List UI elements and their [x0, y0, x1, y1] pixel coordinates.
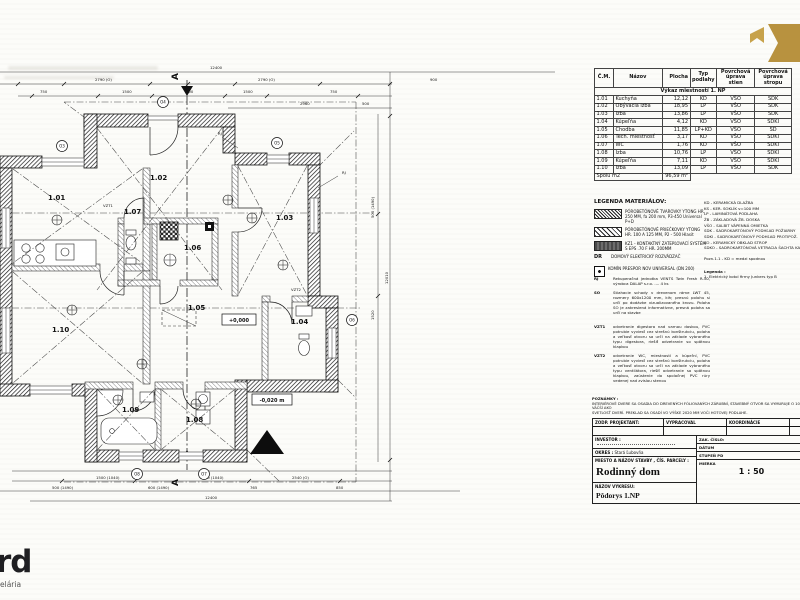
- dimension-label: 1500: [122, 89, 132, 94]
- site-label: MIESTO A NÁZOV STAVBY , ČÍS. PARCELY :: [593, 457, 696, 464]
- dimension-label: 600 (1490): [148, 485, 170, 490]
- opening-marker-label: O5: [274, 141, 280, 146]
- date-label: DÁTUM: [697, 444, 800, 452]
- cell: LP: [690, 165, 717, 173]
- cell: 13,86: [662, 111, 690, 119]
- north-triangle-marker: [250, 430, 284, 454]
- cell: LP+KD: [690, 127, 717, 135]
- investor-value-redacted: [597, 444, 675, 445]
- project-name: Rodinný dom: [593, 464, 696, 482]
- section-title: Výkaz miestností 1. NP: [595, 88, 792, 96]
- interior-walls: [12, 165, 308, 450]
- hatch-swatch: [594, 227, 622, 237]
- cell: VŠO: [717, 165, 755, 173]
- dimension-chains: [0, 72, 555, 501]
- room-label-1-09: 1.09: [122, 406, 139, 414]
- legend-item: PÓROBETÓNOVÉ TVAROVKY YTONG HR. 250 MM, …: [594, 209, 706, 224]
- cell: Izba: [614, 165, 663, 173]
- investor-label: INVESTOR :: [595, 437, 621, 442]
- col-header: Typ podlahy: [690, 69, 717, 88]
- cell: SDK: [755, 111, 792, 119]
- note-row: VZT1 odvetranie digestora nad varnou dos…: [594, 324, 710, 349]
- pozn-note: Pozn.1.1 - KD = medzi spodnou: [704, 256, 800, 262]
- opening-marker-label: O8: [134, 472, 140, 477]
- material-legend: LEGENDA MATERIÁLOV: PÓROBETÓNOVÉ TVAROVK…: [594, 199, 706, 280]
- table-row: 1.07WC1,76KDVŠOSDKI: [595, 142, 792, 150]
- cell: 1.06: [595, 134, 614, 142]
- toilet: [126, 236, 136, 250]
- cell: 1.01: [595, 96, 614, 104]
- room-label-1-07: 1.07: [124, 208, 141, 216]
- legend-item-text: KZ1 - KONTAKTNÝ ZATEPĽOVACÍ SYSTÉM S EPS…: [625, 241, 706, 251]
- cell: 12,12: [662, 96, 690, 104]
- cell: 11,85: [662, 127, 690, 135]
- table-row: 1.03Izba13,86LPVŠOSDK: [595, 111, 792, 119]
- cell: Kúpeľňa: [614, 158, 663, 166]
- table-row: 1.05Chodba11,85LP+KDVŠOSD: [595, 127, 792, 135]
- dimension-label: 500 (1490): [370, 196, 375, 218]
- district-value: Stará Ľubovňa: [614, 450, 643, 455]
- remarks-line2: SVETLOSŤ DVERÍ. PREKLAD SA OSADÍ VO VÝŠK…: [592, 411, 748, 415]
- cell: VŠO: [717, 111, 755, 119]
- cell: KD: [690, 119, 717, 127]
- cell: 18,95: [662, 103, 690, 111]
- order-number-label: ZAK. ČÍSLO:: [697, 436, 800, 444]
- abbrev-line: SDKI - SADROKARTÓNOVÝ PODHĽAD PROTIPOŽ.: [704, 234, 800, 240]
- cell: SDK: [755, 96, 792, 104]
- cell: VŠO: [717, 103, 755, 111]
- dimension-label: 12010: [384, 271, 389, 284]
- note-text: odvetranie digestora nad varnou doskou, …: [613, 324, 710, 349]
- cell: SDKI: [755, 119, 792, 127]
- washbasin: [126, 258, 136, 264]
- note-key: SO: [594, 290, 610, 315]
- drawn-by-label: VYPRACOVAL: [664, 419, 727, 426]
- room-label-1-02: 1.02: [150, 174, 167, 182]
- cell: SDKI: [755, 158, 792, 166]
- windows: [2, 116, 336, 460]
- section-letter-bottom: A: [171, 479, 181, 486]
- dimension-label: 12400: [210, 65, 223, 70]
- table-row: 1.09Kúpeľňa7,11KDVŠOSDKI: [595, 158, 792, 166]
- elevation-outdoor: -0,020 m: [260, 398, 285, 404]
- room-label-1-03: 1.03: [276, 214, 293, 222]
- legend-item-text: PÓROBETÓNOVÉ TVAROVKY YTONG HR. 250 MM, …: [625, 209, 706, 224]
- company-logo-fragment: rd: [0, 544, 31, 580]
- room-label-1-04: 1.04: [291, 318, 308, 326]
- legend-item: PÓROBETÓNOVÉ PRIEČKOVKY YTONG HR. 100 A …: [594, 227, 706, 237]
- cell: 1.07: [595, 142, 614, 150]
- gold-brand-icon: [748, 24, 800, 62]
- title-block: POZNÁMKY : INTERIÉROVÉ DVERE SA OSADIA D…: [592, 397, 800, 504]
- dimension-label: 2790 (O): [258, 77, 275, 82]
- note-text: odvetranie WC, miestností a kúpeľní, PVC…: [613, 353, 710, 383]
- cell: 1.09: [595, 158, 614, 166]
- cell: SDKI: [755, 150, 792, 158]
- cell: VŠO: [717, 119, 755, 127]
- company-logo-subtext: elária: [0, 580, 21, 589]
- dimension-label: 2790 (O): [95, 77, 112, 82]
- cell: Chodba: [614, 127, 663, 135]
- floor-plan: A A: [0, 58, 592, 506]
- cell: WC: [614, 142, 663, 150]
- room-label-1-06: 1.06: [184, 244, 201, 252]
- note-row: SO Stiahacie schody v drevenom ráme LWT …: [594, 290, 710, 315]
- table-row: 1.06Tech. miestnosť3,17KDVŠOSDKI: [595, 134, 792, 142]
- total-area: 96,59 m²: [662, 173, 690, 181]
- dimension-label: 1500: [243, 89, 253, 94]
- cell: SDKI: [755, 142, 792, 150]
- note-key: VZT2: [594, 353, 610, 383]
- cell: LP: [690, 103, 717, 111]
- note-row: RJ Rekuperačná jednotka VENTS Twin Fresh…: [594, 276, 710, 286]
- col-header: Č.M.: [595, 69, 614, 88]
- district-label: OKRES :: [595, 450, 613, 455]
- cell: SDK: [755, 165, 792, 173]
- scale-value: 1 : 50: [697, 467, 800, 476]
- dimension-label: VZT2: [291, 287, 302, 292]
- cell: Kúpeľňa: [614, 119, 663, 127]
- opening-marker-label: O3: [59, 144, 65, 149]
- floor-plan-drawing: A A: [0, 58, 592, 506]
- coordination-label: KOORDINÁCIE: [727, 419, 790, 426]
- dimension-label: 1500 (1040): [96, 475, 120, 480]
- dimension-label: 750: [330, 89, 338, 94]
- scale-label: MIERKA: [697, 460, 800, 467]
- washbasin: [296, 306, 312, 316]
- legend-item-text: KOMÍN PRESPOR NOV UNIVERSAL (DN 200): [608, 266, 695, 271]
- cell: KD: [690, 134, 717, 142]
- remarks: POZNÁMKY : INTERIÉROVÉ DVERE SA OSADIA D…: [592, 397, 800, 416]
- cell: Izba: [614, 111, 663, 119]
- table-row: 1.02Obývacia izba18,95LPVŠOSDK: [595, 103, 792, 111]
- cell: LP: [690, 150, 717, 158]
- cell: 1.05: [595, 127, 614, 135]
- cell: VŠO: [717, 134, 755, 142]
- room-label-1-01: 1.01: [48, 194, 65, 202]
- table-row: 1.04Kúpeľňa4,12KDVŠOSDKI: [595, 119, 792, 127]
- dimension-label: 900: [430, 77, 438, 82]
- room-label-1-10: 1.10: [52, 326, 69, 334]
- cell: SDK: [755, 103, 792, 111]
- note-key: RJ: [594, 276, 610, 286]
- remarks-label: POZNÁMKY :: [592, 397, 618, 401]
- section-line-A: A A: [171, 73, 193, 486]
- cell: Obývacia izba: [614, 103, 663, 111]
- dimension-label: 2960: [300, 101, 310, 106]
- chimney: [160, 222, 178, 240]
- total-label: Spolu m2: [595, 173, 663, 181]
- drawing-notes: RJ Rekuperačná jednotka VENTS Twin Fresh…: [594, 276, 710, 387]
- cell: KD: [690, 96, 717, 104]
- cell: 1,76: [662, 142, 690, 150]
- abbrev-line: SDKO - SADROKARTÓNOVÁ VETRACIA ŠACHTA KA…: [704, 245, 800, 251]
- legend-item: KZ1 - KONTAKTNÝ ZATEPĽOVACÍ SYSTÉM S EPS…: [594, 241, 706, 251]
- section-letter-top: A: [171, 73, 181, 80]
- table-row: 1.08Izba10,76LPVŠOSDKI: [595, 150, 792, 158]
- col-header: Názov: [614, 69, 663, 88]
- cell: 10,76: [662, 150, 690, 158]
- cell: 1.10: [595, 165, 614, 173]
- dimension-label: 750: [40, 89, 48, 94]
- remarks-line1: INTERIÉROVÉ DVERE SA OSADIA DO DREVENÝCH…: [592, 402, 800, 411]
- col-header: Povrchová úprava stien: [717, 69, 755, 88]
- cell: 7,11: [662, 158, 690, 166]
- cell: KD: [690, 158, 717, 166]
- table-section-row: Výkaz miestností 1. NP: [595, 88, 792, 96]
- cell: SD: [755, 127, 792, 135]
- scanned-floorplan-page: A A: [0, 0, 800, 600]
- cell: LP: [690, 111, 717, 119]
- cell: VŠO: [717, 142, 755, 150]
- dimension-label: 500: [362, 101, 370, 106]
- cell: Tech. miestnosť: [614, 134, 663, 142]
- opening-marker-label: O4: [160, 100, 166, 105]
- room-label-1-08: 1.08: [186, 416, 203, 424]
- leader-line: [318, 176, 338, 188]
- dimension-label: 850: [336, 485, 344, 490]
- note-row: VZT2 odvetranie WC, miestností a kúpeľní…: [594, 353, 710, 383]
- col-header: Plocha: [662, 69, 690, 88]
- opening-marker-label: O6: [349, 318, 355, 323]
- opening-marker-label: O7: [201, 472, 207, 477]
- cell: VŠO: [717, 150, 755, 158]
- col-header: Povrchová úprava stropu: [755, 69, 792, 88]
- drawing-title-label: NÁZOV VÝKRESU:: [593, 482, 696, 490]
- room-schedule-table: Č.M. Názov Plocha Typ podlahy Povrchová …: [594, 68, 792, 181]
- legend-item-text: PÓROBETÓNOVÉ PRIEČKOVKY YTONG HR. 100 A …: [625, 227, 706, 237]
- legend-title: LEGENDA MATERIÁLOV:: [594, 199, 706, 206]
- cell: Izba: [614, 150, 663, 158]
- dimension-label: VZT1: [103, 203, 114, 208]
- dimension-label: 12400: [205, 495, 218, 500]
- drawing-title: Pôdorys 1.NP: [593, 490, 696, 503]
- dr-abbrev: DR: [594, 254, 608, 262]
- cell: KD: [690, 142, 717, 150]
- cell: 1.04: [595, 119, 614, 127]
- dimension-label: RJ: [342, 170, 346, 175]
- toilet: [299, 341, 310, 356]
- stage-label: STUPEŇ PD: [697, 452, 800, 460]
- cell: 13,09: [662, 165, 690, 173]
- dimension-label: 500 (1490): [52, 485, 74, 490]
- elevation-main: +0,000: [229, 318, 250, 324]
- cell: 1.08: [595, 150, 614, 158]
- legend-item: DR DOMOVÝ ELEKTRICKÝ ROZVÁDZAČ: [594, 254, 706, 262]
- cell: 1.02: [595, 103, 614, 111]
- note-text: Stiahacie schody v drevenom ráme LWT 45,…: [613, 290, 710, 315]
- note-text: Rekuperačná jednotka VENTS Twin Fresh R-…: [613, 276, 710, 286]
- solid-swatch: [594, 241, 622, 251]
- legend-item-text: DOMOVÝ ELEKTRICKÝ ROZVÁDZAČ: [611, 254, 680, 259]
- cell: 3,17: [662, 134, 690, 142]
- title-block-grid: ZODP. PROJEKTANT: VYPRACOVAL KOORDINÁCIE…: [592, 418, 800, 504]
- cell: SDKI: [755, 134, 792, 142]
- cell: 4,12: [662, 119, 690, 127]
- dimension-label: 765: [250, 485, 258, 490]
- cell: 1.03: [595, 111, 614, 119]
- abbreviation-legend: KD - KERAMICKÁ DLAŽBA KS - KER. SOKLÍK v…: [704, 200, 800, 280]
- dimension-label: 900: [186, 89, 194, 94]
- note-key: VZT1: [594, 324, 610, 349]
- room-label-1-05: 1.05: [188, 304, 205, 312]
- hatch-swatch-dense: [594, 209, 622, 219]
- dimension-label: RJ: [218, 131, 222, 136]
- table-row: 1.10Izba13,09LPVŠOSDK: [595, 165, 792, 173]
- dimension-label: 2540 (O): [292, 475, 309, 480]
- legenda2-item: 1. Elektrický kotol firmy Junkers typ B: [704, 274, 800, 280]
- table-header-row: Č.M. Názov Plocha Typ podlahy Povrchová …: [595, 69, 792, 88]
- dimension-label: 1520: [370, 310, 375, 320]
- table-footer-row: Spolu m2 96,59 m²: [595, 173, 792, 181]
- resp-designer-label: ZODP. PROJEKTANT:: [593, 419, 664, 426]
